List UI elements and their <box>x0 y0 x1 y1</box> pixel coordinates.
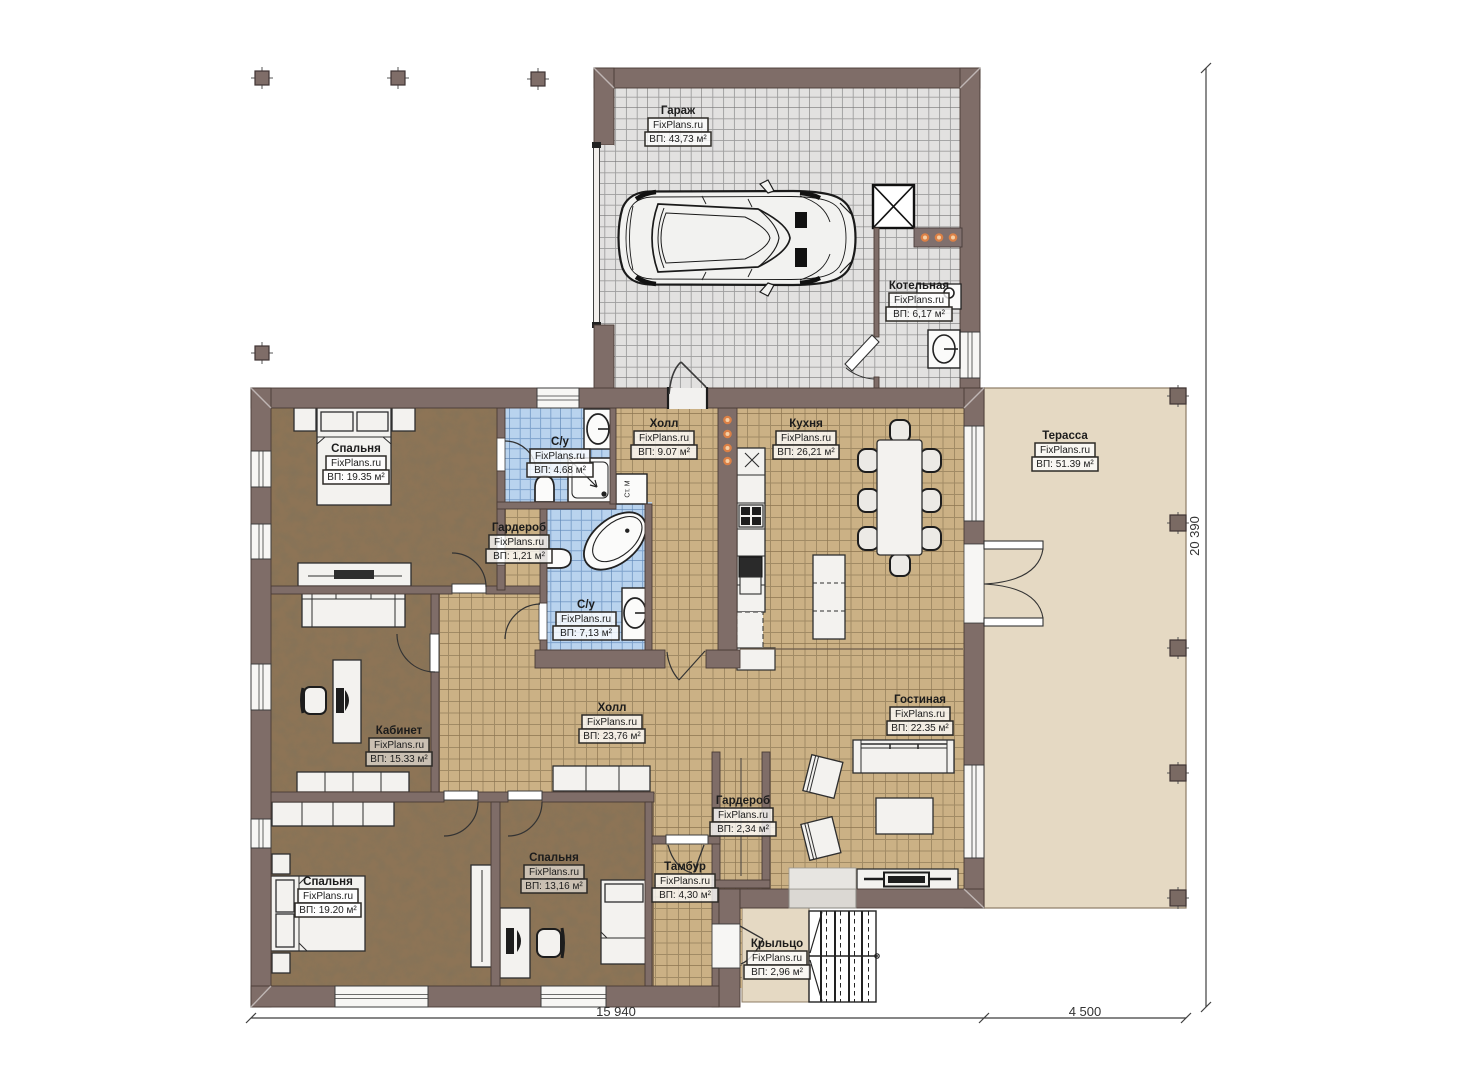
svg-text:15 940: 15 940 <box>596 1004 636 1019</box>
svg-text:ВП: 15.33 м²: ВП: 15.33 м² <box>370 754 428 765</box>
svg-text:FixPlans.ru: FixPlans.ru <box>781 433 831 444</box>
svg-text:С/у: С/у <box>577 599 596 611</box>
svg-text:ВП: 2,96 м²: ВП: 2,96 м² <box>751 967 804 978</box>
svg-text:ВП: 1,21 м²: ВП: 1,21 м² <box>493 551 546 562</box>
svg-text:4 500: 4 500 <box>1069 1004 1102 1019</box>
svg-text:FixPlans.ru: FixPlans.ru <box>895 709 945 720</box>
svg-text:FixPlans.ru: FixPlans.ru <box>494 537 544 548</box>
svg-text:FixPlans.ru: FixPlans.ru <box>587 717 637 728</box>
svg-text:FixPlans.ru: FixPlans.ru <box>535 451 585 462</box>
svg-text:Крыльцо: Крыльцо <box>751 938 803 950</box>
svg-text:ВП: 6,17 м²: ВП: 6,17 м² <box>893 309 946 320</box>
svg-text:ВП: 2,34 м²: ВП: 2,34 м² <box>717 824 770 835</box>
svg-text:FixPlans.ru: FixPlans.ru <box>653 120 703 131</box>
svg-text:Гардероб: Гардероб <box>492 522 546 534</box>
svg-text:Спальня: Спальня <box>331 443 381 455</box>
svg-text:Терасса: Терасса <box>1042 430 1088 442</box>
svg-text:FixPlans.ru: FixPlans.ru <box>752 953 802 964</box>
svg-text:Холл: Холл <box>598 702 627 714</box>
svg-text:С/у: С/у <box>551 436 570 448</box>
svg-text:Гараж: Гараж <box>661 105 696 117</box>
svg-text:Спальня: Спальня <box>529 852 579 864</box>
svg-text:Холл: Холл <box>650 418 679 430</box>
svg-text:FixPlans.ru: FixPlans.ru <box>561 614 611 625</box>
svg-text:FixPlans.ru: FixPlans.ru <box>374 740 424 751</box>
svg-text:ВП: 4,30 м²: ВП: 4,30 м² <box>659 890 712 901</box>
svg-text:Ст. М: Ст. М <box>625 480 632 497</box>
svg-text:FixPlans.ru: FixPlans.ru <box>303 891 353 902</box>
svg-text:Гостиная: Гостиная <box>894 694 946 706</box>
svg-text:Тамбур: Тамбур <box>664 861 706 873</box>
svg-text:FixPlans.ru: FixPlans.ru <box>529 867 579 878</box>
svg-text:ВП: 43,73 м²: ВП: 43,73 м² <box>649 134 707 145</box>
svg-text:FixPlans.ru: FixPlans.ru <box>639 433 689 444</box>
svg-text:20 390: 20 390 <box>1187 516 1202 556</box>
svg-text:ВП: 9.07 м²: ВП: 9.07 м² <box>638 447 691 458</box>
svg-text:ВП: 26,21 м²: ВП: 26,21 м² <box>777 447 835 458</box>
svg-text:ВП: 13,16 м²: ВП: 13,16 м² <box>525 881 583 892</box>
svg-text:ВП: 19.35 м²: ВП: 19.35 м² <box>327 472 385 483</box>
svg-text:ВП: 22.35 м²: ВП: 22.35 м² <box>891 723 949 734</box>
svg-text:Кухня: Кухня <box>789 418 823 430</box>
svg-text:FixPlans.ru: FixPlans.ru <box>1040 445 1090 456</box>
svg-text:Кабинет: Кабинет <box>376 725 423 737</box>
svg-text:FixPlans.ru: FixPlans.ru <box>660 876 710 887</box>
svg-text:FixPlans.ru: FixPlans.ru <box>894 295 944 306</box>
svg-text:ВП: 7,13 м²: ВП: 7,13 м² <box>560 628 613 639</box>
svg-text:FixPlans.ru: FixPlans.ru <box>718 810 768 821</box>
svg-text:Гардероб: Гардероб <box>716 795 770 807</box>
svg-text:Котельная: Котельная <box>889 280 949 292</box>
svg-text:ВП: 51.39 м²: ВП: 51.39 м² <box>1036 459 1094 470</box>
svg-text:ВП: 4.68 м²: ВП: 4.68 м² <box>534 465 587 476</box>
svg-text:FixPlans.ru: FixPlans.ru <box>331 458 381 469</box>
svg-text:ВП: 23,76 м²: ВП: 23,76 м² <box>583 731 641 742</box>
svg-text:ВП: 19.20 м²: ВП: 19.20 м² <box>299 905 357 916</box>
svg-text:Спальня: Спальня <box>303 876 353 888</box>
